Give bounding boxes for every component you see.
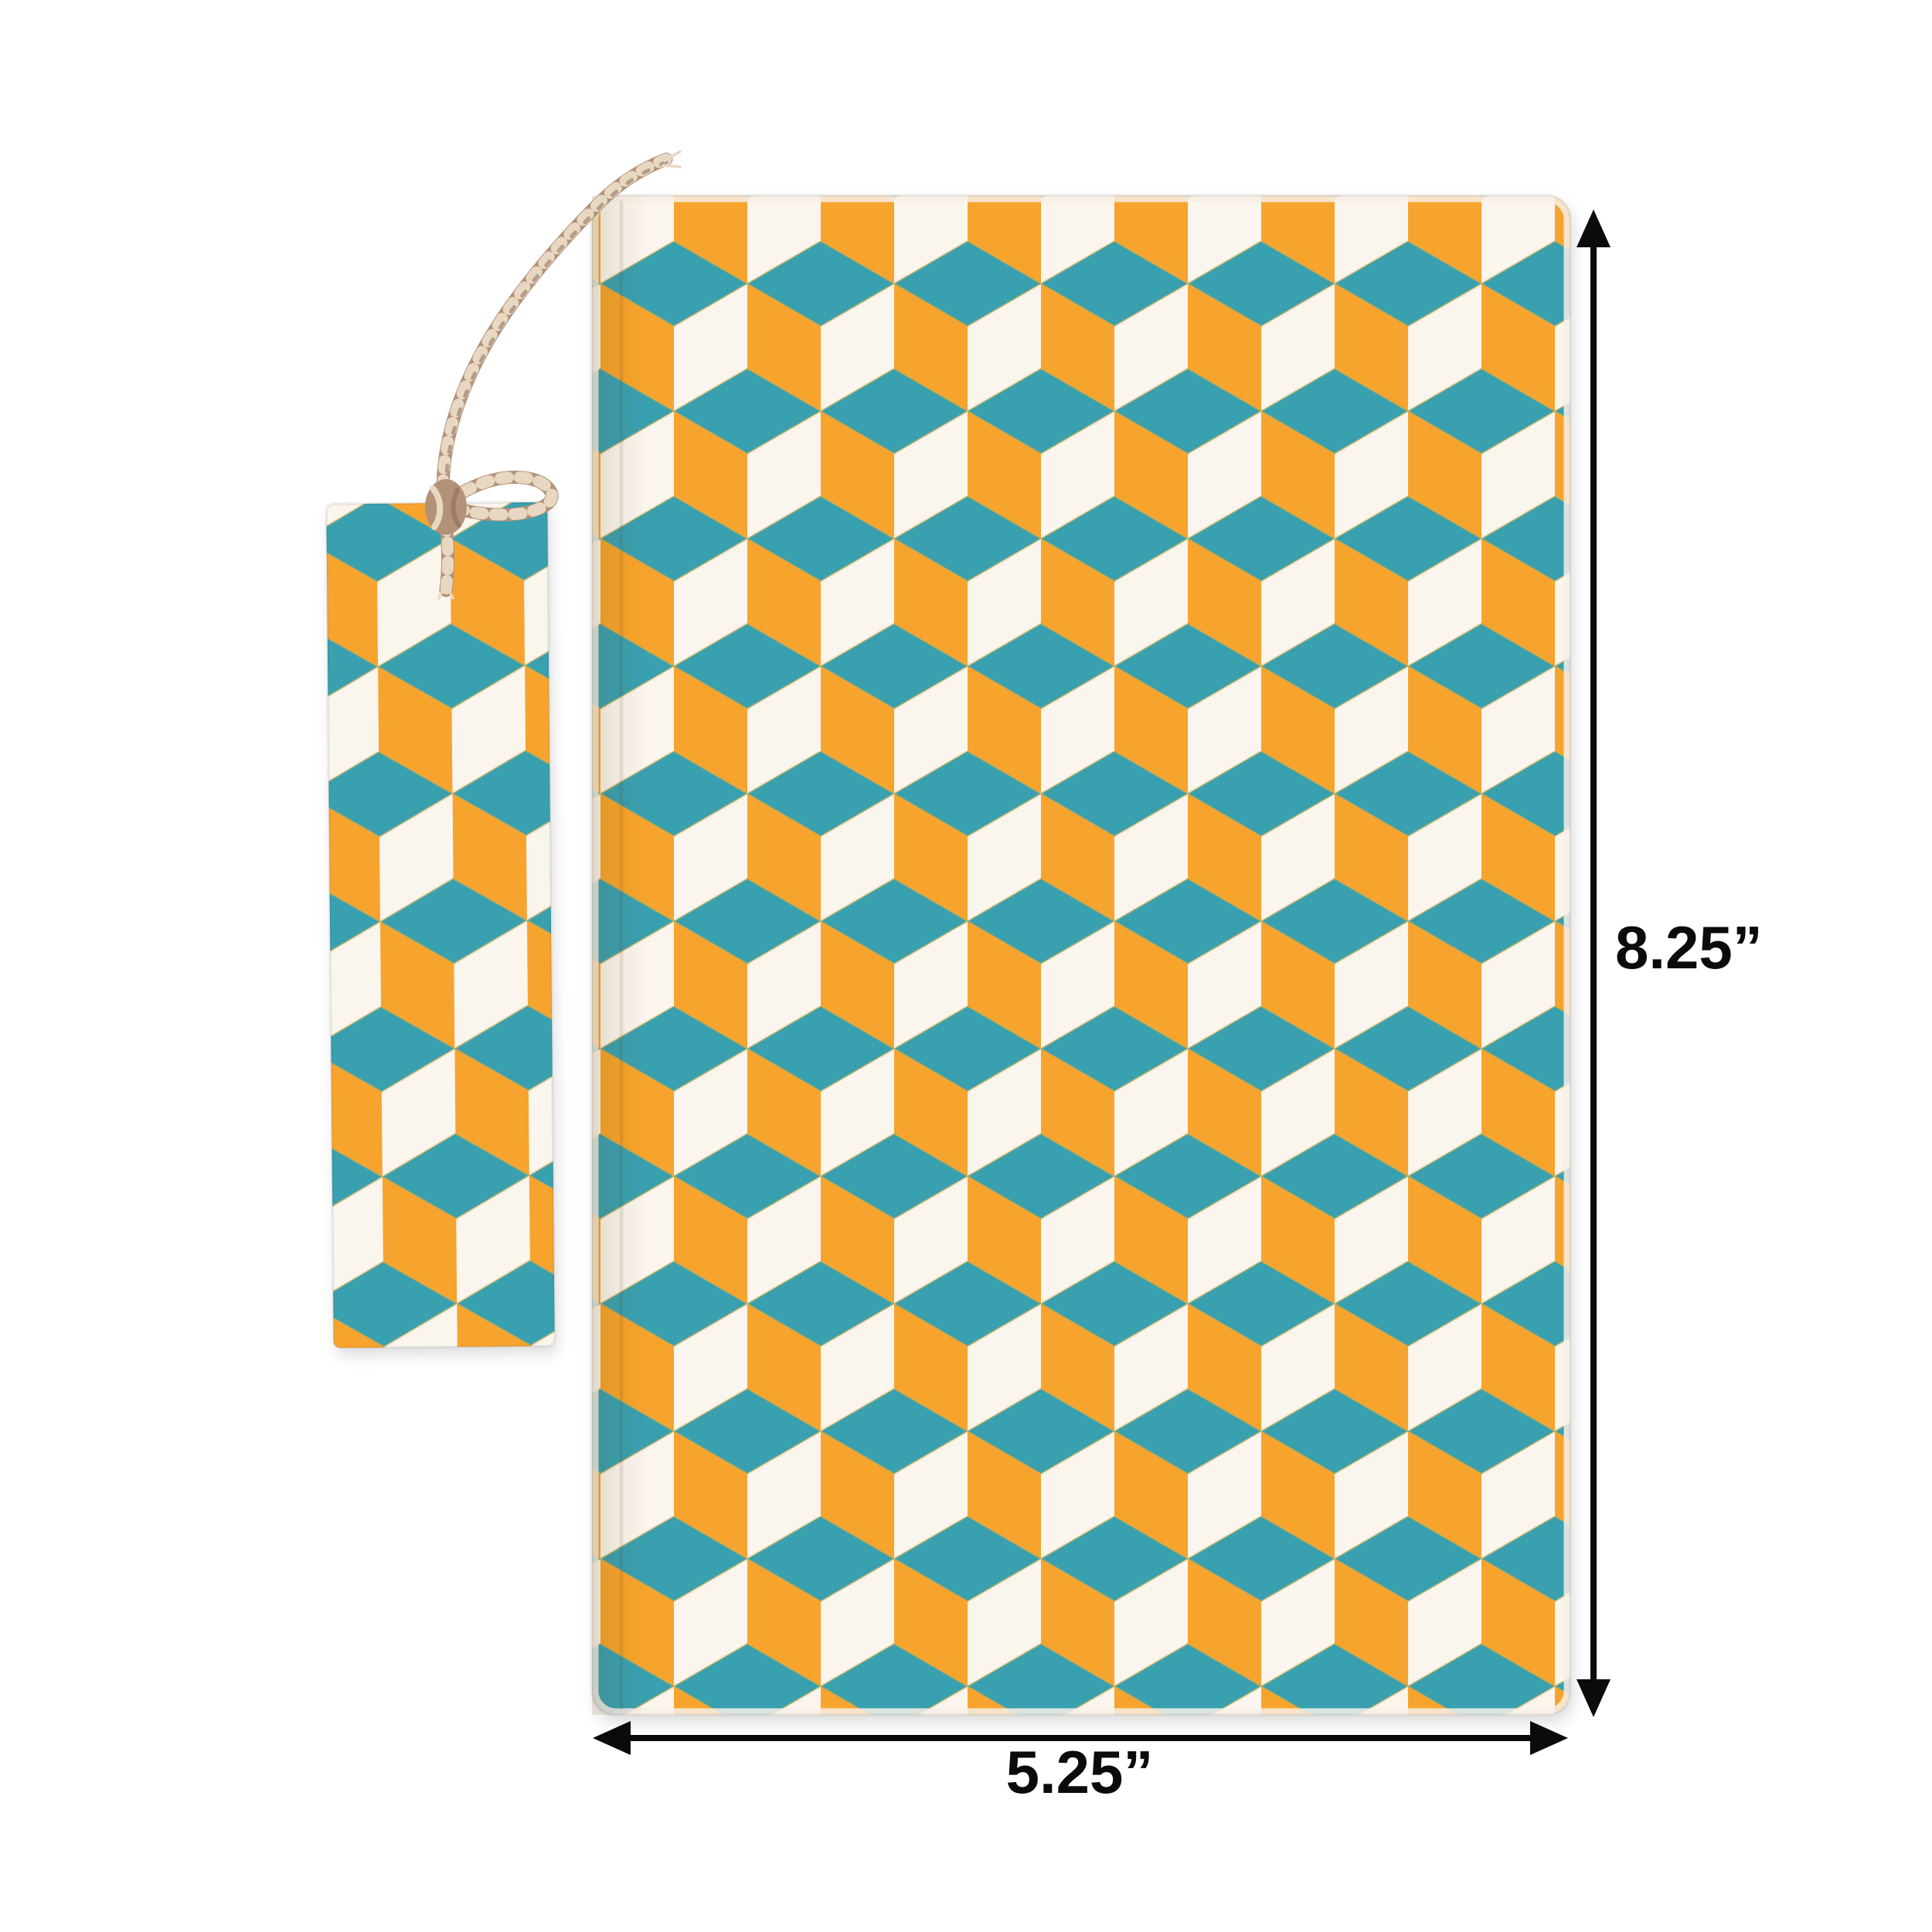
bookmark-pattern [326, 502, 555, 1348]
product-photo: 8.25” 5.25” [0, 0, 1932, 1932]
twine-knot [425, 479, 467, 535]
arrowhead-down-icon [1577, 1679, 1611, 1717]
notebook-pattern [592, 196, 1570, 1715]
scene: 8.25” 5.25” [0, 0, 1932, 1932]
arrowhead-up-icon [1577, 209, 1611, 247]
width-dimension-label: 5.25” [1006, 1738, 1154, 1806]
height-dimension-arrow [1577, 209, 1611, 1717]
arrowhead-right-icon [1530, 1721, 1568, 1755]
notebook-cover [592, 196, 1570, 1715]
arrowhead-left-icon [593, 1721, 631, 1755]
height-dimension-label: 8.25” [1615, 913, 1763, 981]
bookmark [326, 502, 555, 1348]
